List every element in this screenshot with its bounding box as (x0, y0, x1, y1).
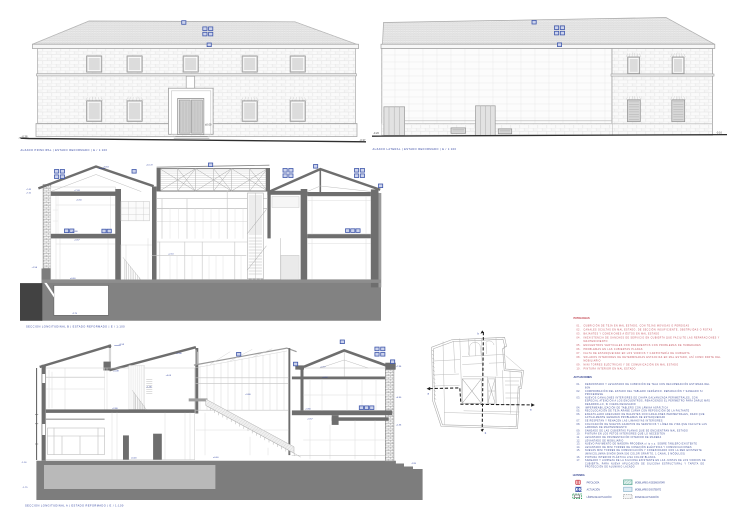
svg-text:+3.57: +3.57 (74, 239, 80, 241)
svg-text:±0.00: ±0.00 (131, 458, 137, 460)
svg-text:±0.00: ±0.00 (205, 123, 212, 127)
svg-text:06.: 06. (577, 414, 581, 416)
svg-text:LEVANTADO DE MINI TORRES DE CO: LEVANTADO DE MINI TORRES DE CONEXIÓN ELÉ… (585, 446, 692, 449)
svg-text:+3.80: +3.80 (245, 394, 251, 396)
svg-text:IMPERMEABILIZACIÓN DE TABLERO: IMPERMEABILIZACIÓN DE TABLERO CON LÁMINA… (585, 406, 668, 409)
svg-text:+7.16: +7.16 (26, 192, 31, 194)
svg-text:ACTUACIÓN: ACTUACIÓN (587, 489, 601, 492)
svg-text:±0.00: ±0.00 (213, 457, 219, 459)
svg-text:16.: 16. (577, 457, 581, 459)
svg-text:CUBRICIÓN DE TEJA EN MAL ESTAD: CUBRICIÓN DE TEJA EN MAL ESTADO, CON TEJ… (584, 325, 690, 328)
svg-text:SE RESPETAN Y REHACEN LAS LIMA: SE RESPETAN Y REHACEN LAS LIMAHOYAS INTE… (585, 420, 663, 423)
svg-text:08.: 08. (577, 424, 581, 426)
svg-text:+6.50: +6.50 (76, 199, 82, 201)
svg-text:-0.16: -0.16 (716, 131, 722, 135)
svg-text:08.: 08. (577, 357, 581, 359)
svg-text:MANTENIMIENTO: MANTENIMIENTO (584, 340, 608, 343)
svg-text:SANEADO Y LIMPIEZA DE LA SILIC: SANEADO Y LIMPIEZA DE LA SILICONA EXISTE… (585, 459, 706, 462)
svg-text:05.: 05. (577, 411, 581, 413)
svg-text:LEVANTADO DE MOBILIARIO: LEVANTADO DE MOBILIARIO (585, 439, 624, 442)
svg-text:+6.86: +6.86 (176, 353, 182, 355)
svg-text:01.: 01. (577, 326, 581, 328)
svg-text:02.: 02. (577, 330, 581, 332)
svg-text:04.: 04. (577, 407, 581, 409)
svg-text:+4.52: +4.52 (322, 377, 328, 379)
svg-text:(MINICOLUMNA SIMÓN DIMA 500 CO: (MINICOLUMNA SIMÓN DIMA 500 COLOR GRAFIT… (585, 453, 685, 456)
svg-text:+7.03: +7.03 (74, 190, 80, 192)
svg-text:SOLADOS INTERIORES DE DETERMIN: SOLADOS INTERIORES DE DETERMINADAS ESTAN… (584, 356, 722, 359)
svg-text:RECOLOCACIÓN DE TEJA ÁRABE CUR: RECOLOCACIÓN DE TEJA ÁRABE CURVA CON REP… (585, 410, 690, 413)
svg-text:-1.95: -1.95 (411, 463, 417, 465)
svg-text:ACTUALMENTE GENERAN PROBLEMAS: ACTUALMENTE GENERAN PROBLEMAS DE ESTANQU… (585, 416, 665, 419)
svg-text:±0.00: ±0.00 (70, 278, 76, 280)
svg-text:60%: 60% (585, 388, 591, 390)
svg-text:INEXISTENCIA DE GANCHOS DE SER: INEXISTENCIA DE GANCHOS DE SERVICIO EN C… (584, 336, 720, 339)
svg-text:12.: 12. (577, 440, 581, 442)
svg-text:15.: 15. (577, 450, 581, 452)
svg-text:LEYENDA: LEYENDA (573, 474, 585, 477)
svg-text:-1.75: -1.75 (23, 487, 29, 489)
svg-text:+1.36: +1.36 (396, 425, 402, 427)
svg-text:LABORES DE MANTENIMIENTO: LABORES DE MANTENIMIENTO (585, 426, 627, 429)
svg-text:+2.10: +2.10 (168, 254, 174, 256)
svg-text:ACTUACIONES: ACTUACIONES (574, 376, 593, 379)
svg-text:PROTECCIÓN DE ALUMINIO LACADO: PROTECCIÓN DE ALUMINIO LACADO (585, 466, 635, 469)
svg-text:SECCION LONGITUDINAL B | ESTAD: SECCION LONGITUDINAL B | ESTADO REFORMAD… (26, 325, 125, 329)
svg-text:+10.72: +10.72 (146, 165, 154, 167)
svg-text:09.: 09. (577, 365, 581, 367)
svg-text:BAJANTES Y CONEXIONES A ÉSTOS: BAJANTES Y CONEXIONES A ÉSTOS EN MAL EST… (584, 332, 660, 335)
svg-text:NUEVO PAVIMENTO DE MADERA PROD: NUEVO PAVIMENTO DE MADERA PRODEMA o/ to … (585, 443, 697, 446)
svg-text:ALZADO PRINCIPAL | ESTADO REFO: ALZADO PRINCIPAL | ESTADO REFORMADO | E … (21, 148, 108, 152)
svg-text:09.: 09. (577, 430, 581, 432)
svg-text:ALZADO LATERAL | ESTADO REFORM: ALZADO LATERAL | ESTADO REFORMADO | E / … (373, 147, 457, 151)
svg-text:NUEVOS CANALONES INTERIORES DE: NUEVOS CANALONES INTERIORES DE CHAPA GAL… (585, 396, 698, 399)
svg-text:10.: 10. (577, 434, 581, 436)
svg-text:NUEVAS MINI TORRES DE COMUNICA: NUEVAS MINI TORRES DE COMUNICACIÓN Y CON… (585, 449, 702, 452)
svg-text:MOBILIARIO A DESMONTAR: MOBILIARIO A DESMONTAR (635, 482, 665, 485)
svg-text:+7.77: +7.77 (320, 366, 326, 368)
svg-text:+3.57: +3.57 (307, 418, 313, 420)
svg-text:DESMONTADO Y LEVANTADO DE CUBR: DESMONTADO Y LEVANTADO DE CUBRICIÓN DE T… (585, 383, 710, 386)
svg-text:+7.36: +7.36 (396, 366, 402, 368)
svg-text:PINTURA INTERIOR EN MAL ESTADO: PINTURA INTERIOR EN MAL ESTADO (584, 368, 636, 371)
svg-text:13.: 13. (577, 444, 581, 446)
svg-text:ENCUENTROS VERTICALES CON PARA: ENCUENTROS VERTICALES CON PARAMENTOS CON… (584, 344, 702, 347)
svg-text:05.: 05. (577, 345, 581, 347)
svg-text:02.: 02. (577, 391, 581, 393)
svg-text:+1.56: +1.56 (32, 267, 38, 269)
svg-text:07.: 07. (577, 421, 581, 423)
svg-text:CANALES OCULTAS EN MAL ESTADO,: CANALES OCULTAS EN MAL ESTADO, DE SECCIÓ… (584, 329, 713, 332)
svg-text:ESPECIAL ATENCIÓN A LOS ENCUEN: ESPECIAL ATENCIÓN A LOS ENCUENTROS, REHA… (585, 400, 710, 403)
svg-text:+7.48: +7.48 (26, 189, 31, 191)
svg-text:10.: 10. (577, 369, 581, 371)
svg-text:COLOCACIÓN DE NUEVOS GANCHOS D: COLOCACIÓN DE NUEVOS GANCHOS DE SERVICIO… (585, 423, 707, 426)
svg-text:MOBILIARIO EXISTENTE: MOBILIARIO EXISTENTE (635, 489, 662, 492)
svg-text:PROBLEMAS EN LAS CUBIERTAS PLA: PROBLEMAS EN LAS CUBIERTAS PLANAS (584, 348, 643, 351)
svg-text:PINTURA EN LOS PETOS INTERIORE: PINTURA EN LOS PETOS INTERIORES QUE LO N… (585, 433, 665, 436)
svg-text:ENGATILLADO ADECUADO DE BAJANT: ENGATILLADO ADECUADO DE BAJANTES CON CAN… (585, 413, 705, 416)
svg-text:04.: 04. (577, 337, 581, 339)
svg-text:01.: 01. (577, 384, 581, 386)
svg-text:17.: 17. (577, 460, 581, 462)
svg-text:+2.80: +2.80 (112, 408, 118, 410)
svg-text:CUBIERTA, PARA NUEVA APLICA: CUBIERTA, PARA NUEVA APLICACIÓN DE SILIC… (585, 462, 705, 465)
svg-text:COMPROBACIÓN DEL ESTADO DEL TA: COMPROBACIÓN DEL ESTADO DEL TABLERO CERÁ… (585, 390, 703, 393)
svg-text:06.: 06. (577, 349, 581, 351)
svg-text:MINI TORRES ELÉCTRICAS Y DE CO: MINI TORRES ELÉCTRICAS Y DE COMUNICACIÓN… (584, 364, 679, 367)
svg-text:-2.75: -2.75 (72, 313, 78, 315)
svg-text:+4.05: +4.05 (166, 375, 172, 377)
svg-text:14.: 14. (577, 447, 581, 449)
svg-text:+4.08: +4.08 (113, 371, 119, 373)
svg-text:-0.20: -0.20 (373, 131, 379, 135)
svg-text:PATOLOGÍA: PATOLOGÍA (587, 482, 600, 485)
svg-text:MOBILIARIO: MOBILIARIO (584, 360, 601, 363)
svg-text:07.: 07. (577, 353, 581, 355)
svg-text:LÍMITE DE ACTUACIÓN: LÍMITE DE ACTUACIÓN (587, 496, 612, 499)
svg-text:ZONA DE ACTUACIÓN: ZONA DE ACTUACIÓN (635, 496, 659, 499)
svg-text:PROCEDIESE: PROCEDIESE (585, 394, 603, 396)
svg-text:11.: 11. (577, 437, 581, 439)
svg-text:PINTURA INTERIOR PLÁSTICA LISA: PINTURA INTERIOR PLÁSTICA LISA COLOR BLA… (585, 456, 656, 459)
svg-text:FALTA DE ESTANQUEIDAD EN LOS V: FALTA DE ESTANQUEIDAD EN LOS VIDRIOS Y C… (584, 352, 690, 355)
svg-text:03.: 03. (577, 397, 581, 399)
svg-text:DESARROLLO, SI FUERA NECESARIO: DESARROLLO, SI FUERA NECESARIO (585, 403, 636, 406)
svg-text:+3.80: +3.80 (72, 231, 78, 233)
svg-text:PATOLOGIAS: PATOLOGIAS (574, 317, 590, 320)
svg-text:-0.37: -0.37 (360, 138, 366, 142)
svg-text:03.: 03. (577, 333, 581, 335)
svg-text:+4.90: +4.90 (396, 397, 402, 399)
svg-text:SECCION LONGITUDINAL A | ESTAD: SECCION LONGITUDINAL A | ESTADO REFORMAD… (25, 503, 124, 507)
svg-text:+3.80: +3.80 (305, 409, 311, 411)
svg-text:LEVANTADO DE PAVIMENTACIÓN INT: LEVANTADO DE PAVIMENTACIÓN INTERIOR DE M… (585, 436, 662, 439)
svg-text:-0.38: -0.38 (22, 134, 28, 138)
svg-text:+1.36: +1.36 (146, 387, 152, 389)
svg-text:-1.16: -1.16 (22, 462, 28, 464)
svg-text:SANEADO DE LAS CUBIERTAS PLANA: SANEADO DE LAS CUBIERTAS PLANAS QUE SE E… (585, 429, 688, 432)
